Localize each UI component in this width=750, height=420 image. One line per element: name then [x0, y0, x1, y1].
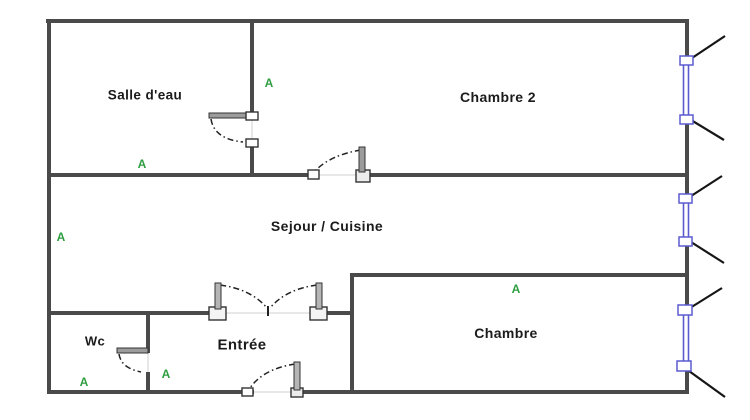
walls [46, 19, 689, 394]
room-label-salle-deau: Salle d'eau [108, 88, 182, 103]
orientation-marker-a: A [162, 367, 171, 381]
orientation-marker-a: A [265, 76, 274, 90]
chambre-2-door [308, 147, 370, 182]
orientation-marker-a: A [80, 375, 89, 389]
room-label-wc: Wc [85, 334, 105, 349]
sejour-double-door [209, 283, 327, 320]
room-label-sejour-cuisine: Sejour / Cuisine [271, 218, 383, 234]
wc-door [117, 348, 148, 372]
window-chambre-icon [677, 288, 725, 397]
orientation-marker-a: A [138, 157, 147, 171]
orientation-marker-a: A [57, 230, 66, 244]
floor-plan-drawing [0, 0, 750, 420]
orientation-marker-a: A [512, 282, 521, 296]
room-label-chambre: Chambre [474, 325, 537, 341]
room-label-entree: Entrée [217, 337, 266, 354]
floor-plan: Salle d'eau Chambre 2 Sejour / Cuisine W… [0, 0, 750, 420]
room-label-chambre-2: Chambre 2 [460, 89, 536, 105]
salle-deau-door [209, 112, 258, 147]
